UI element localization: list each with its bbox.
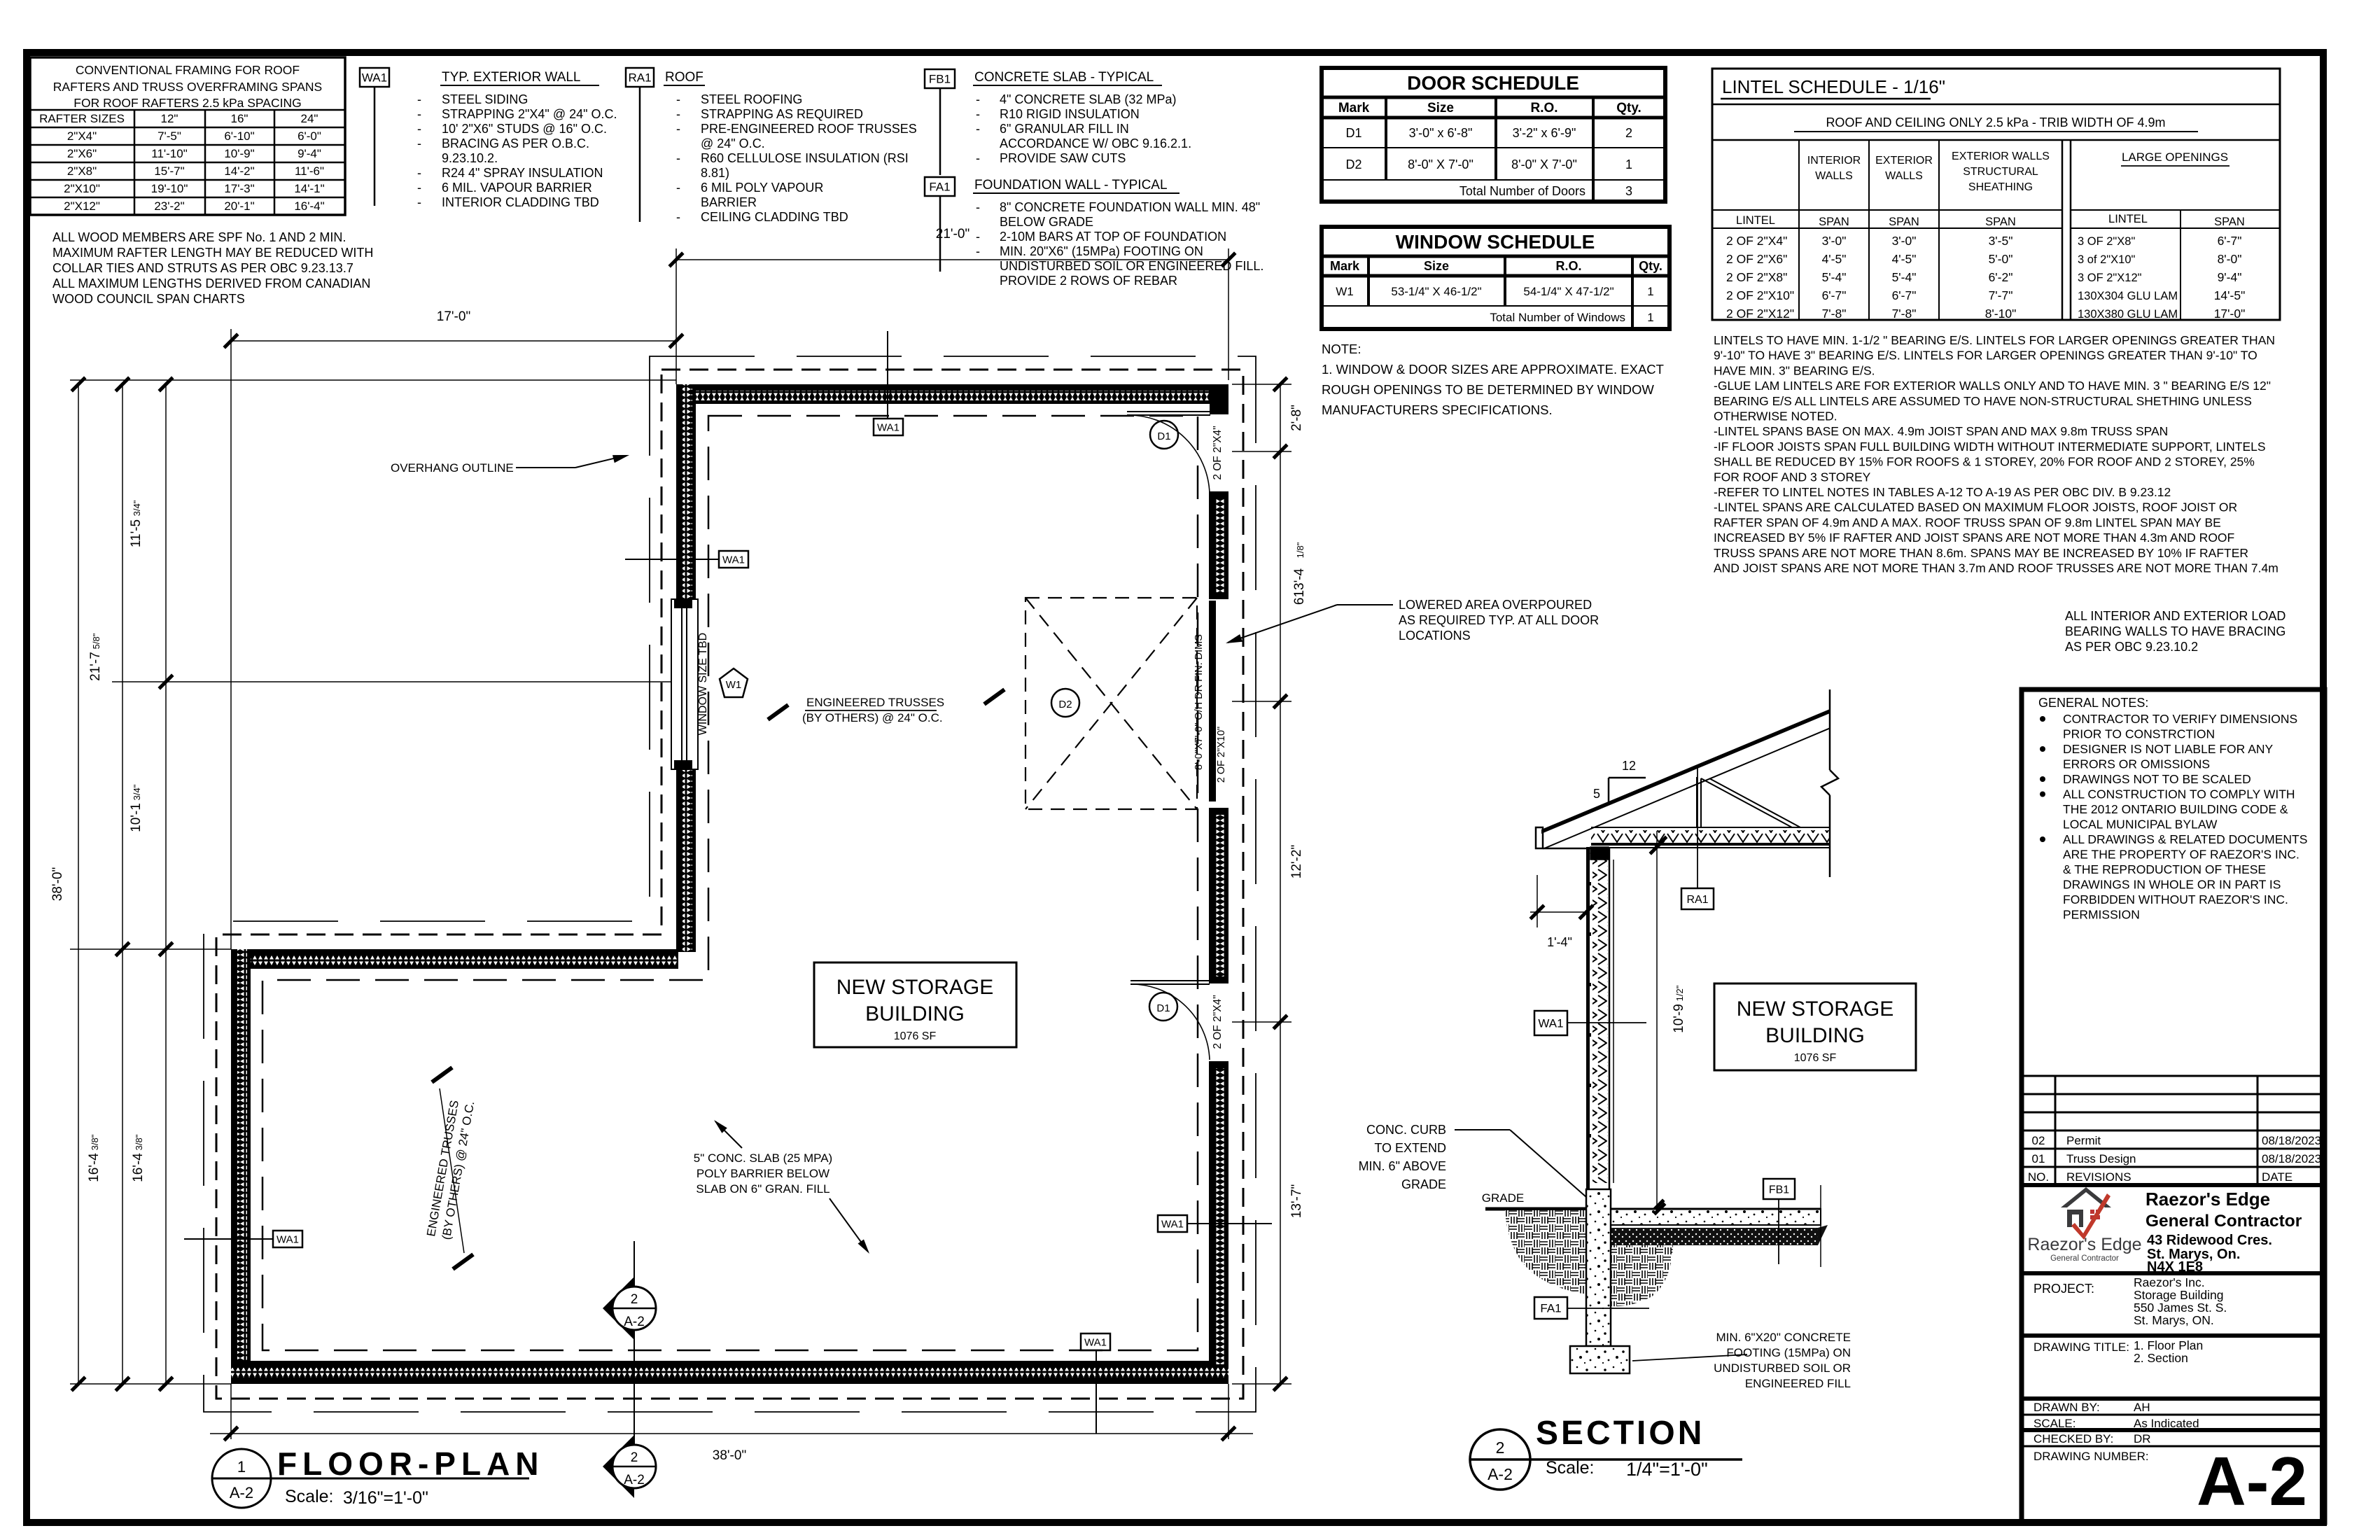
svg-text:-: - bbox=[417, 136, 421, 150]
svg-text:1/4"=1'-0": 1/4"=1'-0" bbox=[1626, 1459, 1708, 1480]
svg-text:CONCRETE SLAB - TYPICAL: CONCRETE SLAB - TYPICAL bbox=[974, 70, 1154, 85]
svg-text:DOOR SCHEDULE: DOOR SCHEDULE bbox=[1407, 72, 1579, 94]
svg-text:R60 CELLULOSE INSULATION (RSI: R60 CELLULOSE INSULATION (RSI bbox=[701, 151, 909, 165]
svg-text:PERMISSION: PERMISSION bbox=[2063, 908, 2140, 922]
svg-text:General Contractor: General Contractor bbox=[2145, 1212, 2302, 1231]
svg-text:2 OF 2"X12": 2 OF 2"X12" bbox=[1726, 307, 1794, 321]
svg-text:16'-4": 16'-4" bbox=[294, 199, 324, 213]
svg-text:5: 5 bbox=[1593, 787, 1600, 801]
svg-text:RA1: RA1 bbox=[1686, 894, 1708, 906]
svg-text:2 OF 2"X4": 2 OF 2"X4" bbox=[1212, 426, 1224, 479]
svg-text:20'-1": 20'-1" bbox=[224, 199, 254, 213]
svg-text:23'-2": 23'-2" bbox=[154, 199, 184, 213]
svg-text:-: - bbox=[676, 107, 680, 121]
svg-text:17'-3": 17'-3" bbox=[224, 182, 254, 195]
svg-text:SPAN: SPAN bbox=[1985, 216, 2016, 228]
svg-text:-: - bbox=[676, 92, 680, 106]
svg-text:NEW STORAGE: NEW STORAGE bbox=[836, 976, 993, 999]
svg-text:LINTEL: LINTEL bbox=[1736, 214, 1775, 227]
svg-text:STEEL SIDING: STEEL SIDING bbox=[442, 92, 528, 106]
svg-text:3 OF 2"X8": 3 OF 2"X8" bbox=[2078, 235, 2135, 248]
svg-text:RAFTERS AND TRUSS OVERFRAMING: RAFTERS AND TRUSS OVERFRAMING SPANS bbox=[53, 80, 322, 94]
svg-text:A-2: A-2 bbox=[2197, 1443, 2307, 1520]
svg-text:CHECKED BY:: CHECKED BY: bbox=[2033, 1432, 2113, 1445]
svg-text:RAFTER SIZES: RAFTER SIZES bbox=[39, 112, 125, 125]
svg-text:(BY OTHERS) @ 24" O.C.: (BY OTHERS) @ 24" O.C. bbox=[802, 711, 943, 724]
svg-text:DRAWING TITLE:: DRAWING TITLE: bbox=[2033, 1340, 2129, 1354]
svg-text:1: 1 bbox=[1647, 285, 1653, 298]
svg-text:-: - bbox=[417, 166, 421, 180]
svg-text:6'-0": 6'-0" bbox=[297, 129, 321, 143]
svg-text:Mark: Mark bbox=[1338, 101, 1370, 115]
svg-text:130X304 GLU LAM: 130X304 GLU LAM bbox=[2078, 290, 2178, 302]
svg-text:16'-4: 16'-4 bbox=[87, 1153, 101, 1182]
svg-text:DRAWINGS NOT TO BE SCALED: DRAWINGS NOT TO BE SCALED bbox=[2063, 772, 2251, 786]
svg-text:1. WINDOW & DOOR SIZES ARE APP: 1. WINDOW & DOOR SIZES ARE APPROXIMATE. … bbox=[1322, 362, 1664, 377]
svg-text:8'-0" X 7'-0": 8'-0" X 7'-0" bbox=[1511, 157, 1577, 171]
svg-text:FB1: FB1 bbox=[929, 73, 951, 86]
svg-text:Scale:: Scale: bbox=[1546, 1458, 1594, 1478]
svg-text:10'-9: 10'-9 bbox=[1672, 1004, 1686, 1033]
svg-text:-: - bbox=[976, 230, 980, 244]
svg-text:A-2: A-2 bbox=[624, 1473, 645, 1487]
svg-text:OTHERWISE NOTED.: OTHERWISE NOTED. bbox=[1714, 409, 1837, 423]
svg-text:7'-5": 7'-5" bbox=[157, 129, 181, 143]
svg-text:14'-1": 14'-1" bbox=[294, 182, 324, 195]
svg-text:Truss Design: Truss Design bbox=[2066, 1152, 2136, 1165]
svg-text:-LINTEL SPANS BASE ON MAX. 4.9: -LINTEL SPANS BASE ON MAX. 4.9m JOIST SP… bbox=[1714, 424, 2168, 438]
svg-text:01: 01 bbox=[2032, 1152, 2045, 1165]
svg-text:FORBIDDEN WITHOUT RAEZOR'S INC: FORBIDDEN WITHOUT RAEZOR'S INC. bbox=[2063, 892, 2288, 906]
svg-text:BELOW GRADE: BELOW GRADE bbox=[1000, 215, 1093, 229]
svg-text:WA1: WA1 bbox=[362, 71, 387, 85]
svg-text:2 OF 2"X10": 2 OF 2"X10" bbox=[1726, 288, 1794, 302]
svg-text:-IF FLOOR JOISTS SPAN FULL BUI: -IF FLOOR JOISTS SPAN FULL BUILDING WIDT… bbox=[1714, 440, 2266, 454]
svg-text:SPAN: SPAN bbox=[1819, 216, 1849, 228]
svg-text:Qty.: Qty. bbox=[1616, 101, 1641, 115]
svg-text:1. Floor Plan: 1. Floor Plan bbox=[2134, 1338, 2203, 1352]
svg-text:14'-2": 14'-2" bbox=[224, 164, 254, 178]
svg-text:SHALL BE REDUCED BY 15% FOR RO: SHALL BE REDUCED BY 15% FOR ROOFS & 1 ST… bbox=[1714, 455, 2255, 469]
svg-text:R.O.: R.O. bbox=[1555, 259, 1581, 273]
svg-text:LINTELS TO HAVE MIN. 1-1/2 " B: LINTELS TO HAVE MIN. 1-1/2 " BEARING E/S… bbox=[1714, 333, 2275, 347]
svg-text:19'-10": 19'-10" bbox=[151, 182, 188, 195]
svg-text:STRUCTURAL: STRUCTURAL bbox=[1963, 166, 2038, 178]
svg-text:LARGE OPENINGS: LARGE OPENINGS bbox=[2122, 150, 2228, 164]
svg-text:R24 4" SPRAY INSULATION: R24 4" SPRAY INSULATION bbox=[442, 166, 603, 180]
svg-text:2"X10": 2"X10" bbox=[64, 182, 100, 195]
svg-text:8" CONCRETE FOUNDATION WALL MI: 8" CONCRETE FOUNDATION WALL MIN. 48" bbox=[1000, 200, 1260, 214]
svg-text:2. Section: 2. Section bbox=[2134, 1351, 2188, 1365]
svg-text:PROVIDE SAW CUTS: PROVIDE SAW CUTS bbox=[1000, 151, 1126, 165]
svg-text:8'-0"X7'-0" O/H DR FIN. DIMS: 8'-0"X7'-0" O/H DR FIN. DIMS bbox=[1193, 634, 1205, 770]
svg-text:6 MIL. VAPOUR BARRIER: 6 MIL. VAPOUR BARRIER bbox=[442, 181, 592, 195]
svg-text:2"X8": 2"X8" bbox=[67, 164, 97, 178]
svg-text:FA1: FA1 bbox=[1540, 1302, 1561, 1315]
svg-text:& THE REPRODUCTION OF THESE: & THE REPRODUCTION OF THESE bbox=[2063, 862, 2266, 876]
svg-text:-: - bbox=[676, 210, 680, 224]
svg-text:ROUGH OPENINGS TO BE DETERMINE: ROUGH OPENINGS TO BE DETERMINED BY WINDO… bbox=[1322, 382, 1654, 397]
svg-text:21'-7: 21'-7 bbox=[88, 652, 103, 681]
svg-text:2-10M BARS AT TOP OF FOUNDATIO: 2-10M BARS AT TOP OF FOUNDATION bbox=[1000, 230, 1226, 244]
svg-text:SECTION: SECTION bbox=[1536, 1415, 1704, 1452]
svg-text:REVISIONS: REVISIONS bbox=[2066, 1170, 2131, 1184]
svg-text:Permit: Permit bbox=[2066, 1134, 2101, 1147]
svg-text:Mark: Mark bbox=[1330, 259, 1360, 273]
svg-text:RAFTER SPAN OF 4.9m AND A MAX.: RAFTER SPAN OF 4.9m AND A MAX. ROOF TRUS… bbox=[1714, 515, 2221, 529]
svg-text:STEEL ROOFING: STEEL ROOFING bbox=[701, 92, 802, 106]
svg-text:W1: W1 bbox=[726, 679, 742, 691]
svg-text:UNDISTURBED SOIL OR: UNDISTURBED SOIL OR bbox=[1714, 1361, 1851, 1375]
svg-text:FOUNDATION WALL - TYPICAL: FOUNDATION WALL - TYPICAL bbox=[974, 178, 1168, 192]
svg-text:5'-4": 5'-4" bbox=[1892, 270, 1917, 284]
svg-text:9.23.10.2.: 9.23.10.2. bbox=[442, 151, 498, 165]
svg-text:RA1: RA1 bbox=[628, 71, 651, 85]
svg-text:7'-8": 7'-8" bbox=[1822, 307, 1847, 321]
svg-text:-REFER TO LINTEL NOTES IN TABL: -REFER TO LINTEL NOTES IN TABLES A-12 TO… bbox=[1714, 485, 2171, 499]
svg-text:AH: AH bbox=[2134, 1401, 2150, 1414]
svg-text:R.O.: R.O. bbox=[1530, 101, 1557, 115]
svg-text:A-2: A-2 bbox=[624, 1315, 645, 1329]
svg-text:3'-0": 3'-0" bbox=[1892, 234, 1917, 248]
svg-text:2"X6": 2"X6" bbox=[67, 147, 97, 160]
svg-text:BARRIER: BARRIER bbox=[701, 195, 757, 209]
svg-text:FA1: FA1 bbox=[929, 181, 950, 194]
svg-text:6'-7": 6'-7" bbox=[1892, 288, 1917, 302]
svg-text:1/2": 1/2" bbox=[1674, 985, 1685, 1001]
svg-text:11'-5: 11'-5 bbox=[129, 519, 143, 547]
svg-text:Total Number of Windows: Total Number of Windows bbox=[1490, 311, 1625, 324]
svg-text:INCREASED BY 5% IF RAFTER AND: INCREASED BY 5% IF RAFTER AND JOIST SPAN… bbox=[1714, 531, 2234, 545]
svg-text:ERRORS OR OMISSIONS: ERRORS OR OMISSIONS bbox=[2063, 757, 2210, 771]
svg-text:5" CONC. SLAB (25 MPA): 5" CONC. SLAB (25 MPA) bbox=[694, 1151, 832, 1165]
svg-text:Storage Building: Storage Building bbox=[2134, 1288, 2223, 1302]
svg-text:Total Number of Doors: Total Number of Doors bbox=[1459, 184, 1585, 198]
svg-text:BEARING WALLS TO HAVE BRACING: BEARING WALLS TO HAVE BRACING bbox=[2065, 624, 2285, 638]
svg-text:BUILDING: BUILDING bbox=[865, 1002, 965, 1025]
svg-text:-: - bbox=[676, 181, 680, 195]
svg-text:WALLS: WALLS bbox=[1815, 170, 1853, 182]
svg-text:COLLAR TIES AND STRUTS AS PER: COLLAR TIES AND STRUTS AS PER OBC 9.23.1… bbox=[52, 261, 353, 275]
svg-text:THE 2012 ONTARIO BUILDING CODE: THE 2012 ONTARIO BUILDING CODE & bbox=[2063, 802, 2288, 816]
svg-text:43 Ridewood Cres.: 43 Ridewood Cres. bbox=[2147, 1233, 2272, 1248]
svg-text:10' 2"X6" STUDS @ 16" O.C.: 10' 2"X6" STUDS @ 16" O.C. bbox=[442, 122, 607, 136]
svg-text:1/8": 1/8" bbox=[1295, 542, 1305, 558]
svg-text:10'-1: 10'-1 bbox=[129, 803, 143, 832]
svg-text:NO.: NO. bbox=[2028, 1170, 2049, 1184]
svg-text:130X380 GLU LAM: 130X380 GLU LAM bbox=[2078, 308, 2178, 321]
svg-text:NOTE:: NOTE: bbox=[1322, 342, 1361, 356]
svg-text:MIN. 6"X20" CONCRETE: MIN. 6"X20" CONCRETE bbox=[1716, 1331, 1851, 1344]
svg-text:ENGINEERED FILL: ENGINEERED FILL bbox=[1745, 1377, 1851, 1390]
svg-text:16": 16" bbox=[231, 112, 248, 125]
svg-text:1076 SF: 1076 SF bbox=[1794, 1052, 1837, 1064]
svg-text:EXTERIOR: EXTERIOR bbox=[1875, 155, 1933, 167]
svg-text:8'-0" X 7'-0": 8'-0" X 7'-0" bbox=[1408, 157, 1473, 171]
svg-text:GRADE: GRADE bbox=[1401, 1177, 1446, 1191]
svg-text:3'-0" x 6'-8": 3'-0" x 6'-8" bbox=[1409, 126, 1473, 140]
svg-text:PRIOR TO CONSTRCTION: PRIOR TO CONSTRCTION bbox=[2063, 727, 2215, 741]
svg-text:STRAPPING 2"X4" @ 24" O.C.: STRAPPING 2"X4" @ 24" O.C. bbox=[442, 107, 617, 121]
svg-text:BUILDING: BUILDING bbox=[1765, 1024, 1865, 1047]
svg-text:2: 2 bbox=[1625, 126, 1632, 140]
svg-text:SPAN: SPAN bbox=[2214, 216, 2245, 228]
svg-text:3'-2" x 6'-9": 3'-2" x 6'-9" bbox=[1513, 126, 1576, 140]
svg-text:MIN. 20"X6" (15MPa) FOOTING ON: MIN. 20"X6" (15MPa) FOOTING ON bbox=[1000, 244, 1203, 258]
svg-text:D1: D1 bbox=[1156, 1002, 1170, 1014]
svg-text:613'-4: 613'-4 bbox=[1292, 568, 1307, 605]
svg-text:8'-10": 8'-10" bbox=[1985, 307, 2017, 321]
svg-text:3: 3 bbox=[1625, 184, 1632, 198]
svg-text:-: - bbox=[417, 92, 421, 106]
svg-text:-: - bbox=[976, 92, 980, 106]
svg-text:DRAWN BY:: DRAWN BY: bbox=[2033, 1401, 2100, 1414]
svg-text:17'-0": 17'-0" bbox=[2214, 307, 2246, 321]
svg-text:9'-4": 9'-4" bbox=[297, 147, 321, 160]
svg-text:3/4": 3/4" bbox=[132, 500, 142, 516]
svg-text:Scale:: Scale: bbox=[285, 1487, 333, 1506]
svg-text:2"X12": 2"X12" bbox=[64, 199, 100, 213]
svg-text:-: - bbox=[976, 200, 980, 214]
svg-text:ALL CONSTRUCTION TO COMPLY WIT: ALL CONSTRUCTION TO COMPLY WITH bbox=[2063, 787, 2295, 801]
svg-text:7'-7": 7'-7" bbox=[1989, 288, 2013, 302]
svg-text:2 OF 2"X6": 2 OF 2"X6" bbox=[1726, 252, 1787, 266]
svg-text:LOWERED AREA OVERPOURED: LOWERED AREA OVERPOURED bbox=[1399, 598, 1592, 612]
svg-text:16'-4: 16'-4 bbox=[131, 1153, 146, 1182]
svg-text:ARE THE PROPERTY OF RAEZOR'S I: ARE THE PROPERTY OF RAEZOR'S INC. bbox=[2063, 848, 2299, 862]
svg-text:-GLUE LAM LINTELS ARE FOR EXTE: -GLUE LAM LINTELS ARE FOR EXTERIOR WALLS… bbox=[1714, 379, 2271, 393]
svg-text:Size: Size bbox=[1424, 259, 1449, 273]
svg-text:DRAWING NUMBER:: DRAWING NUMBER: bbox=[2033, 1450, 2149, 1463]
svg-text:DR: DR bbox=[2134, 1432, 2151, 1445]
svg-text:3/8": 3/8" bbox=[134, 1134, 144, 1150]
svg-text:STRAPPING AS REQUIRED: STRAPPING AS REQUIRED bbox=[701, 107, 863, 121]
svg-text:13'-7": 13'-7" bbox=[1289, 1184, 1304, 1218]
svg-text:2 OF 2"X8": 2 OF 2"X8" bbox=[1726, 270, 1787, 284]
svg-text:SPAN: SPAN bbox=[1889, 216, 1919, 228]
svg-text:EXTERIOR WALLS: EXTERIOR WALLS bbox=[1952, 150, 2050, 162]
svg-text:SLAB ON 6" GRAN. FILL: SLAB ON 6" GRAN. FILL bbox=[696, 1182, 829, 1196]
svg-text:-: - bbox=[976, 244, 980, 258]
svg-text:CONC. CURB: CONC. CURB bbox=[1366, 1123, 1446, 1137]
svg-text:08/18/2023: 08/18/2023 bbox=[2262, 1152, 2321, 1165]
svg-text:1076 SF: 1076 SF bbox=[894, 1030, 937, 1042]
svg-text:6" GRANULAR FILL IN: 6" GRANULAR FILL IN bbox=[1000, 122, 1129, 136]
svg-text:Raezor's Edge: Raezor's Edge bbox=[2027, 1235, 2141, 1254]
svg-text:-: - bbox=[976, 151, 980, 165]
svg-text:-: - bbox=[676, 122, 680, 136]
svg-text:AS PER OBC 9.23.10.2: AS PER OBC 9.23.10.2 bbox=[2065, 640, 2198, 654]
svg-text:11'-6": 11'-6" bbox=[295, 164, 324, 178]
svg-text:5'-0": 5'-0" bbox=[1989, 252, 2013, 266]
svg-text:24": 24" bbox=[301, 112, 318, 125]
svg-text:9'-4": 9'-4" bbox=[2218, 270, 2242, 284]
svg-text:FOOTING (15MPa) ON: FOOTING (15MPa) ON bbox=[1726, 1346, 1851, 1359]
svg-text:POLY BARRIER BELOW: POLY BARRIER BELOW bbox=[696, 1167, 829, 1180]
svg-text:ROOF AND CEILING ONLY 2.5 kPa: ROOF AND CEILING ONLY 2.5 kPa - TRIB WID… bbox=[1826, 115, 2165, 129]
svg-text:12": 12" bbox=[161, 112, 178, 125]
svg-text:SHEATHING: SHEATHING bbox=[1968, 181, 2033, 193]
svg-text:D1: D1 bbox=[1157, 430, 1170, 442]
svg-text:6'-7": 6'-7" bbox=[2218, 234, 2242, 248]
svg-text:4'-5": 4'-5" bbox=[1892, 252, 1917, 266]
svg-text:-LINTEL SPANS ARE CALCULATED B: -LINTEL SPANS ARE CALCULATED BASED ON MA… bbox=[1714, 500, 2237, 514]
svg-text:Raezor's Inc.: Raezor's Inc. bbox=[2134, 1275, 2205, 1289]
svg-text:17'-0": 17'-0" bbox=[437, 309, 470, 324]
svg-text:-: - bbox=[417, 122, 421, 136]
svg-text:General Contractor: General Contractor bbox=[2050, 1254, 2119, 1263]
svg-text:38'-0": 38'-0" bbox=[713, 1448, 746, 1463]
svg-text:2 OF 2"X4": 2 OF 2"X4" bbox=[1212, 995, 1224, 1049]
svg-text:WA1: WA1 bbox=[877, 421, 899, 433]
svg-text:3/8": 3/8" bbox=[90, 1134, 100, 1150]
svg-text:WALLS: WALLS bbox=[1885, 170, 1923, 182]
svg-text:7'-8": 7'-8" bbox=[1892, 307, 1917, 321]
svg-text:CEILING CLADDING TBD: CEILING CLADDING TBD bbox=[701, 210, 848, 224]
svg-text:8'-0": 8'-0" bbox=[2218, 252, 2242, 266]
svg-text:ACCORDANCE W/ OBC 9.16.2.1.: ACCORDANCE W/ OBC 9.16.2.1. bbox=[1000, 136, 1191, 150]
svg-text:R10 RIGID INSULATION: R10 RIGID INSULATION bbox=[1000, 107, 1140, 121]
svg-text:5/8": 5/8" bbox=[91, 633, 101, 649]
svg-text:WOOD COUNCIL SPAN CHARTS: WOOD COUNCIL SPAN CHARTS bbox=[52, 292, 245, 306]
svg-text:12'-2": 12'-2" bbox=[1289, 845, 1304, 878]
svg-text:15'-7": 15'-7" bbox=[154, 164, 184, 178]
svg-text:-: - bbox=[976, 122, 980, 136]
svg-text:21'-0": 21'-0" bbox=[936, 227, 969, 241]
svg-text:2: 2 bbox=[631, 1450, 638, 1465]
svg-text:6'-10": 6'-10" bbox=[224, 129, 254, 143]
svg-text:FLOOR-PLAN: FLOOR-PLAN bbox=[277, 1445, 545, 1482]
svg-text:8.81): 8.81) bbox=[701, 166, 729, 180]
svg-text:WA1: WA1 bbox=[1084, 1336, 1107, 1348]
svg-text:ROOF: ROOF bbox=[665, 70, 703, 85]
svg-text:Size: Size bbox=[1427, 101, 1454, 115]
svg-text:INTERIOR CLADDING TBD: INTERIOR CLADDING TBD bbox=[442, 195, 599, 209]
svg-text:WA1: WA1 bbox=[1161, 1218, 1184, 1230]
svg-text:11'-10": 11'-10" bbox=[151, 147, 188, 160]
svg-text:10'-9": 10'-9" bbox=[224, 147, 254, 160]
svg-text:WA1: WA1 bbox=[1538, 1017, 1563, 1030]
svg-text:DRAWINGS IN WHOLE OR IN PART I: DRAWINGS IN WHOLE OR IN PART IS bbox=[2063, 878, 2281, 892]
svg-text:St. Marys, ON.: St. Marys, ON. bbox=[2134, 1313, 2214, 1327]
svg-text:AS REQUIRED TYP. AT ALL DOOR: AS REQUIRED TYP. AT ALL DOOR bbox=[1399, 613, 1599, 627]
svg-text:LINTEL SCHEDULE - 1/16": LINTEL SCHEDULE - 1/16" bbox=[1722, 76, 1945, 97]
svg-text:14'-5": 14'-5" bbox=[2214, 288, 2246, 302]
svg-text:PROJECT:: PROJECT: bbox=[2033, 1282, 2094, 1296]
svg-text:-: - bbox=[417, 107, 421, 121]
svg-text:54-1/4" X 47-1/2": 54-1/4" X 47-1/2" bbox=[1523, 285, 1613, 298]
svg-text:2 OF 2"X10": 2 OF 2"X10" bbox=[1216, 727, 1227, 783]
svg-text:4'-5": 4'-5" bbox=[1822, 252, 1847, 266]
svg-text:6 MIL POLY VAPOUR: 6 MIL POLY VAPOUR bbox=[701, 181, 823, 195]
svg-text:MAXIMUM RAFTER LENGTH MAY BE R: MAXIMUM RAFTER LENGTH MAY BE REDUCED WIT… bbox=[52, 246, 373, 260]
svg-text:LINTEL: LINTEL bbox=[2108, 213, 2148, 225]
svg-text:MANUFACTURERS SPECIFICATIONS.: MANUFACTURERS SPECIFICATIONS. bbox=[1322, 402, 1553, 417]
svg-text:Qty.: Qty. bbox=[1639, 259, 1662, 273]
svg-text:FOR ROOF AND 3 STOREY: FOR ROOF AND 3 STOREY bbox=[1714, 470, 1871, 484]
svg-text:6'-2": 6'-2" bbox=[1989, 270, 2013, 284]
svg-text:TRUSS SPANS ARE NOT MORE THAN: TRUSS SPANS ARE NOT MORE THAN 8.6m. SPAN… bbox=[1714, 546, 2248, 560]
svg-text:ALL DRAWINGS & RELATED DOCUMEN: ALL DRAWINGS & RELATED DOCUMENTS bbox=[2063, 832, 2307, 846]
svg-text:TO EXTEND: TO EXTEND bbox=[1374, 1141, 1446, 1155]
svg-text:LOCATIONS: LOCATIONS bbox=[1399, 629, 1471, 643]
svg-text:3'-5": 3'-5" bbox=[1989, 234, 2013, 248]
svg-text:DESIGNER IS NOT LIABLE FOR ANY: DESIGNER IS NOT LIABLE FOR ANY bbox=[2063, 742, 2274, 756]
svg-text:1: 1 bbox=[1647, 311, 1653, 324]
svg-text:PRE-ENGINEERED ROOF TRUSSES: PRE-ENGINEERED ROOF TRUSSES bbox=[701, 122, 917, 136]
svg-text:2"X4": 2"X4" bbox=[67, 129, 97, 143]
svg-text:6'-7": 6'-7" bbox=[1822, 288, 1847, 302]
svg-text:38'-0": 38'-0" bbox=[50, 867, 65, 901]
svg-text:WINDOW SCHEDULE: WINDOW SCHEDULE bbox=[1396, 231, 1595, 253]
svg-text:LOCAL MUNICIPAL BYLAW: LOCAL MUNICIPAL BYLAW bbox=[2063, 818, 2218, 832]
svg-text:ENGINEERED TRUSSES: ENGINEERED TRUSSES bbox=[806, 696, 944, 709]
svg-text:-: - bbox=[417, 195, 421, 209]
svg-text:@ 24" O.C.: @ 24" O.C. bbox=[701, 136, 765, 150]
svg-text:53-1/4" X 46-1/2": 53-1/4" X 46-1/2" bbox=[1391, 285, 1481, 298]
svg-text:WA1: WA1 bbox=[276, 1233, 299, 1245]
svg-text:INTERIOR: INTERIOR bbox=[1807, 155, 1861, 167]
svg-text:1: 1 bbox=[1625, 157, 1632, 171]
svg-text:2: 2 bbox=[631, 1292, 638, 1307]
svg-text:3'-0": 3'-0" bbox=[1822, 234, 1847, 248]
svg-text:NEW STORAGE: NEW STORAGE bbox=[1737, 997, 1893, 1021]
svg-text:Raezor's Edge: Raezor's Edge bbox=[2145, 1189, 2270, 1210]
svg-text:-: - bbox=[676, 151, 680, 165]
svg-text:5'-4": 5'-4" bbox=[1822, 270, 1847, 284]
svg-text:4" CONCRETE SLAB (32 MPa): 4" CONCRETE SLAB (32 MPa) bbox=[1000, 92, 1176, 106]
svg-text:12: 12 bbox=[1622, 759, 1636, 773]
svg-text:TYP. EXTERIOR WALL: TYP. EXTERIOR WALL bbox=[442, 70, 581, 85]
svg-text:3/4": 3/4" bbox=[132, 784, 142, 800]
svg-text:WA1: WA1 bbox=[722, 554, 745, 566]
svg-text:ALL INTERIOR AND EXTERIOR LOAD: ALL INTERIOR AND EXTERIOR LOAD bbox=[2065, 609, 2285, 623]
svg-text:MIN. 6" ABOVE: MIN. 6" ABOVE bbox=[1359, 1159, 1446, 1173]
svg-text:HAVE MIN. 3" BEARING E/S.: HAVE MIN. 3" BEARING E/S. bbox=[1714, 363, 1875, 377]
svg-text:D2: D2 bbox=[1345, 157, 1361, 171]
svg-text:FB1: FB1 bbox=[1769, 1184, 1789, 1196]
svg-text:-: - bbox=[976, 107, 980, 121]
svg-text:-: - bbox=[417, 181, 421, 195]
svg-text:2'-8": 2'-8" bbox=[1289, 405, 1304, 431]
svg-text:550 James St. S.: 550 James St. S. bbox=[2134, 1301, 2227, 1315]
svg-text:AND JOIST SPANS ARE NOT MORE T: AND JOIST SPANS ARE NOT MORE THAN 3.7m A… bbox=[1714, 561, 2278, 575]
svg-text:BRACING AS PER O.B.C.: BRACING AS PER O.B.C. bbox=[442, 136, 589, 150]
svg-text:GRADE: GRADE bbox=[1482, 1191, 1524, 1205]
svg-text:1: 1 bbox=[237, 1458, 246, 1476]
svg-text:3/16"=1'-0": 3/16"=1'-0" bbox=[343, 1488, 428, 1508]
svg-text:A-2: A-2 bbox=[230, 1484, 253, 1501]
svg-text:ALL WOOD MEMBERS ARE SPF No. 1: ALL WOOD MEMBERS ARE SPF No. 1 AND 2 MIN… bbox=[52, 230, 346, 244]
svg-text:9'-10" TO HAVE 3" BEARING E/S.: 9'-10" TO HAVE 3" BEARING E/S. LINTELS F… bbox=[1714, 349, 2257, 363]
svg-text:WINDOW SIZE TBD: WINDOW SIZE TBD bbox=[697, 633, 709, 735]
svg-text:GENERAL NOTES:: GENERAL NOTES: bbox=[2038, 696, 2148, 710]
svg-text:1'-4": 1'-4" bbox=[1547, 935, 1572, 949]
svg-text:FOR ROOF RAFTERS 2.5 kPa SPACI: FOR ROOF RAFTERS 2.5 kPa SPACING bbox=[73, 96, 301, 110]
svg-text:DATE: DATE bbox=[2262, 1170, 2292, 1184]
svg-text:08/18/2023: 08/18/2023 bbox=[2262, 1134, 2321, 1147]
svg-text:2: 2 bbox=[1496, 1438, 1505, 1457]
svg-text:CONVENTIONAL FRAMING FOR ROOF: CONVENTIONAL FRAMING FOR ROOF bbox=[76, 63, 300, 77]
svg-text:ALL MAXIMUM LENGTHS DERIVED FR: ALL MAXIMUM LENGTHS DERIVED FROM CANADIA… bbox=[52, 276, 370, 290]
svg-text:OVERHANG OUTLINE: OVERHANG OUTLINE bbox=[391, 461, 514, 475]
svg-text:CONTRACTOR TO VERIFY DIMENSION: CONTRACTOR TO VERIFY DIMENSIONS bbox=[2063, 712, 2297, 726]
svg-text:PROVIDE 2 ROWS OF REBAR: PROVIDE 2 ROWS OF REBAR bbox=[1000, 274, 1177, 288]
svg-text:2 OF 2"X4": 2 OF 2"X4" bbox=[1726, 234, 1787, 248]
svg-text:3 OF 2"X12": 3 OF 2"X12" bbox=[2078, 272, 2142, 284]
svg-text:A-2: A-2 bbox=[1487, 1465, 1513, 1483]
svg-text:W1: W1 bbox=[1336, 285, 1354, 298]
